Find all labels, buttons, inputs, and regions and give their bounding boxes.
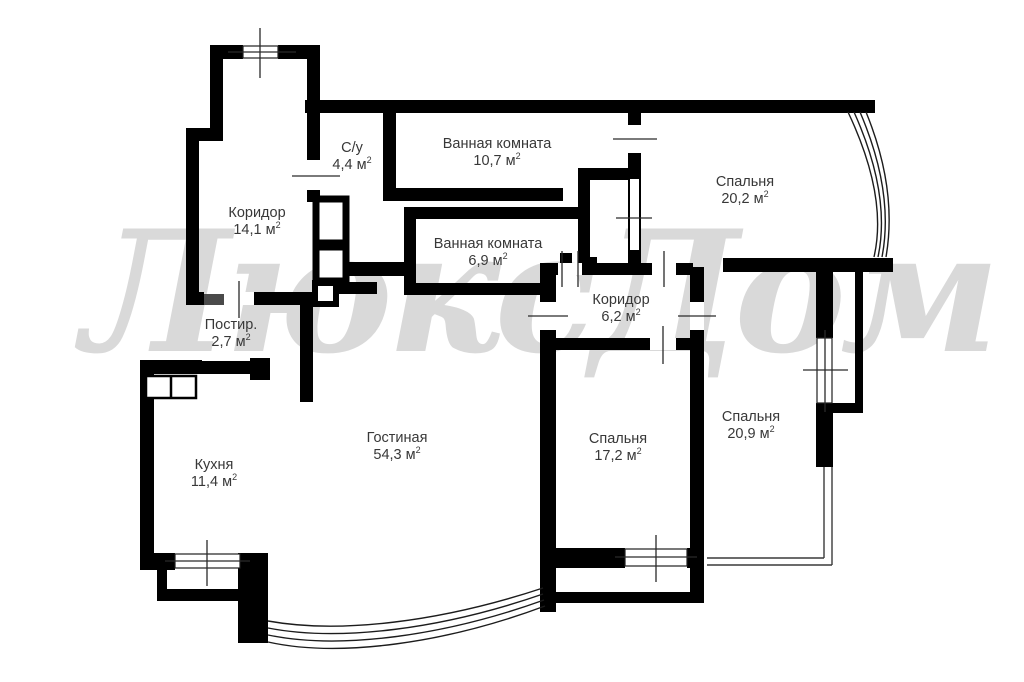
room-area: 54,3 м2: [367, 447, 428, 464]
room-area: 10,7 м2: [443, 153, 552, 170]
room-area: 6,9 м2: [434, 253, 543, 270]
room-label-kuhnya: Кухня 11,4 м2: [191, 457, 237, 491]
room-name: Ванная комната: [434, 236, 543, 253]
room-area: 17,2 м2: [589, 448, 647, 465]
bay-window-arcs-top-right: [848, 112, 889, 257]
floor-plan-drawing: [0, 0, 1024, 682]
room-area: 11,4 м2: [191, 474, 237, 491]
room-label-vannaya-10-7: Ванная комната 10,7 м2: [443, 136, 552, 170]
room-area: 2,7 м2: [205, 334, 258, 351]
radiator-symbol: [146, 376, 196, 398]
room-label-gostinaya: Гостиная 54,3 м2: [367, 430, 428, 464]
room-name: Коридор: [592, 292, 649, 309]
room-area: 4,4 м2: [332, 157, 371, 174]
room-label-spalnya-20-2: Спальня 20,2 м2: [716, 174, 774, 208]
room-label-su: С/у 4,4 м2: [332, 140, 371, 174]
door-leaf: [204, 294, 224, 305]
room-area: 14,1 м2: [228, 222, 285, 239]
room-label-postir: Постир. 2,7 м2: [205, 317, 258, 351]
room-label-koridor-14: Коридор 14,1 м2: [228, 205, 285, 239]
bay-window-arcs-bottom: [268, 588, 545, 648]
room-label-koridor-6-2: Коридор 6,2 м2: [592, 292, 649, 326]
balcony-glazing-lines: [707, 467, 832, 565]
room-name: Ванная комната: [443, 136, 552, 153]
windows: [175, 46, 832, 568]
room-label-spalnya-20-9: Спальня 20,9 м2: [722, 409, 780, 443]
room-area: 20,2 м2: [716, 191, 774, 208]
room-area: 20,9 м2: [722, 426, 780, 443]
room-label-spalnya-17-2: Спальня 17,2 м2: [589, 431, 647, 465]
room-label-vannaya-6-9: Ванная комната 6,9 м2: [434, 236, 543, 270]
floor-plan-page: ЛюксДом: [0, 0, 1024, 682]
room-name: Кухня: [191, 457, 237, 474]
room-area: 6,2 м2: [592, 309, 649, 326]
